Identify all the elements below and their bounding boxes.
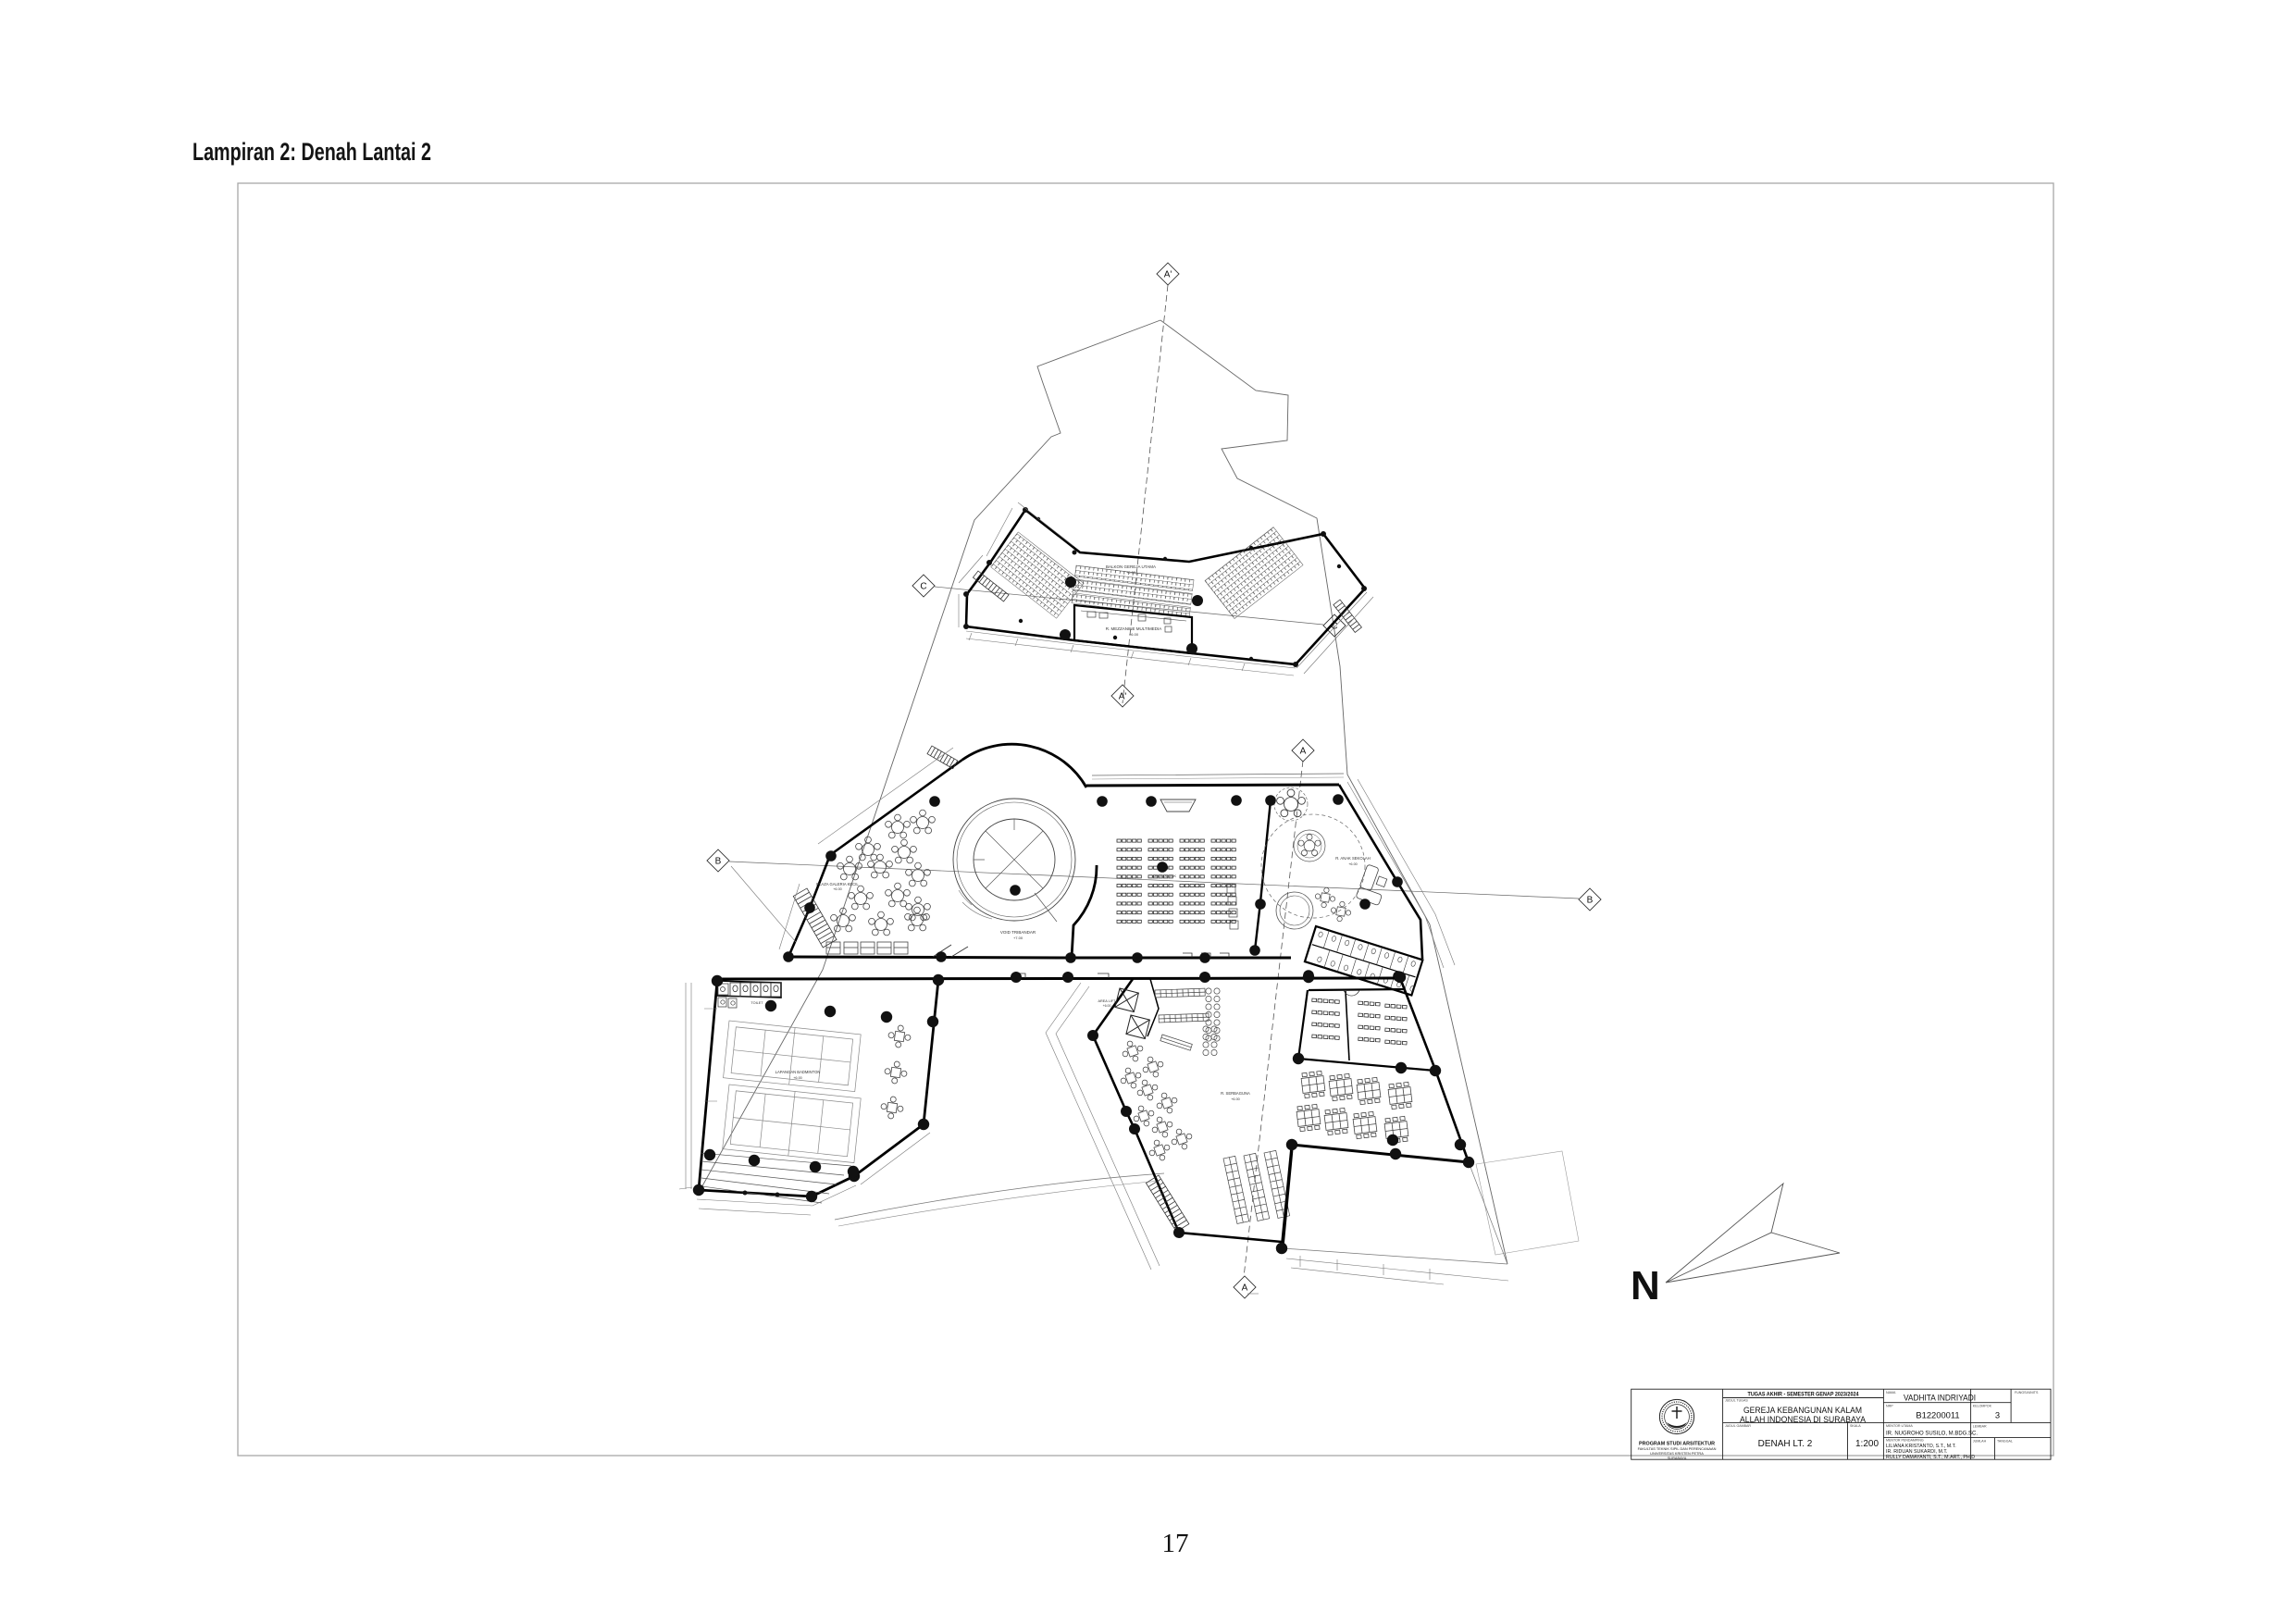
svg-text:R. ANAK SEKOLAH: R. ANAK SEKOLAH (1335, 856, 1370, 861)
svg-text:N: N (1631, 1263, 1660, 1308)
svg-text:DENAH LT. 2: DENAH LT. 2 (1758, 1439, 1813, 1449)
svg-text:PLAZA GALERIA KECIL: PLAZA GALERIA KECIL (816, 882, 859, 886)
svg-text:JUDUL GAMBAR: JUDUL GAMBAR (1725, 1424, 1751, 1428)
svg-text:B: B (715, 856, 722, 866)
svg-text:+6.00: +6.00 (1129, 632, 1139, 637)
svg-text:1:200: 1:200 (1855, 1439, 1879, 1449)
svg-text:TOILET: TOILET (751, 1001, 763, 1005)
svg-text:+7.00: +7.00 (1013, 936, 1023, 940)
svg-text:NAMA: NAMA (1886, 1391, 1896, 1395)
svg-text:TUGAS AKHIR - SEMESTER GENAP 2: TUGAS AKHIR - SEMESTER GENAP 2023/2024 (1748, 1391, 1859, 1397)
svg-text:C: C (920, 581, 926, 591)
svg-text:+6.00: +6.00 (793, 1076, 802, 1080)
svg-text:A: A (1300, 746, 1307, 756)
svg-text:+6.00: +6.00 (1103, 1004, 1111, 1008)
svg-text:ALLAH INDONESIA DI SURABAYA: ALLAH INDONESIA DI SURABAYA (1740, 1415, 1866, 1424)
svg-text:R. SERBAGUNA: R. SERBAGUNA (1221, 1091, 1250, 1096)
svg-text:MENTOR PENDAMPING: MENTOR PENDAMPING (1886, 1439, 1924, 1443)
svg-text:RULLY DAMAYANTI, S.T., M.ART.,: RULLY DAMAYANTI, S.T., M.ART., PH.D (1886, 1455, 1975, 1460)
svg-text:R. MEZZANINE MULTIMEDIA: R. MEZZANINE MULTIMEDIA (1106, 626, 1161, 631)
svg-text:3: 3 (1995, 1410, 2000, 1420)
svg-text:SKALA: SKALA (1850, 1424, 1861, 1428)
svg-text:KELOMPOK: KELOMPOK (1973, 1405, 1992, 1408)
svg-text:A': A' (1119, 691, 1127, 701)
svg-text:VOID TRIBANDAR: VOID TRIBANDAR (1000, 930, 1036, 935)
svg-text:+6.00: +6.00 (1231, 1097, 1240, 1101)
svg-text:LAPANGAN BADMINTON: LAPANGAN BADMINTON (775, 1070, 821, 1074)
svg-text:A: A (1242, 1283, 1248, 1293)
svg-text:AREA LIFT: AREA LIFT (1098, 999, 1117, 1003)
svg-text:LEMBAR: LEMBAR (1973, 1425, 1987, 1429)
svg-text:GEREJA KEBANGUNAN KALAM: GEREJA KEBANGUNAN KALAM (1743, 1406, 1862, 1415)
svg-text:NRP: NRP (1886, 1405, 1893, 1408)
svg-text:TANGGAL: TANGGAL (1997, 1439, 2013, 1443)
svg-text:JUMLAH: JUMLAH (1973, 1439, 1987, 1443)
svg-text:AREA DUDUK: AREA DUDUK (1152, 874, 1176, 878)
svg-text:SURABAYA: SURABAYA (1668, 1456, 1687, 1460)
svg-text:+6.00: +6.00 (1348, 862, 1358, 866)
svg-text:MENTOR UTAMA: MENTOR UTAMA (1886, 1424, 1913, 1428)
svg-text:BALKON GEREJA UTAMA: BALKON GEREJA UTAMA (1106, 564, 1156, 569)
svg-text:A': A' (1164, 269, 1172, 279)
svg-text:+6.00: +6.00 (833, 887, 842, 891)
svg-text:JUDUL TUGAS: JUDUL TUGAS (1725, 1399, 1748, 1403)
svg-text:FUNGSI/UNITS: FUNGSI/UNITS (2015, 1391, 2039, 1395)
svg-text:B: B (1587, 895, 1594, 905)
svg-text:IR. NUGROHO SUSILO, M.BDG.SC.: IR. NUGROHO SUSILO, M.BDG.SC. (1886, 1432, 1978, 1437)
svg-text:VADHITA INDRIYADI: VADHITA INDRIYADI (1904, 1393, 1976, 1403)
svg-text:+6.00: +6.00 (1126, 570, 1136, 575)
svg-text:B12200011: B12200011 (1916, 1410, 1959, 1420)
